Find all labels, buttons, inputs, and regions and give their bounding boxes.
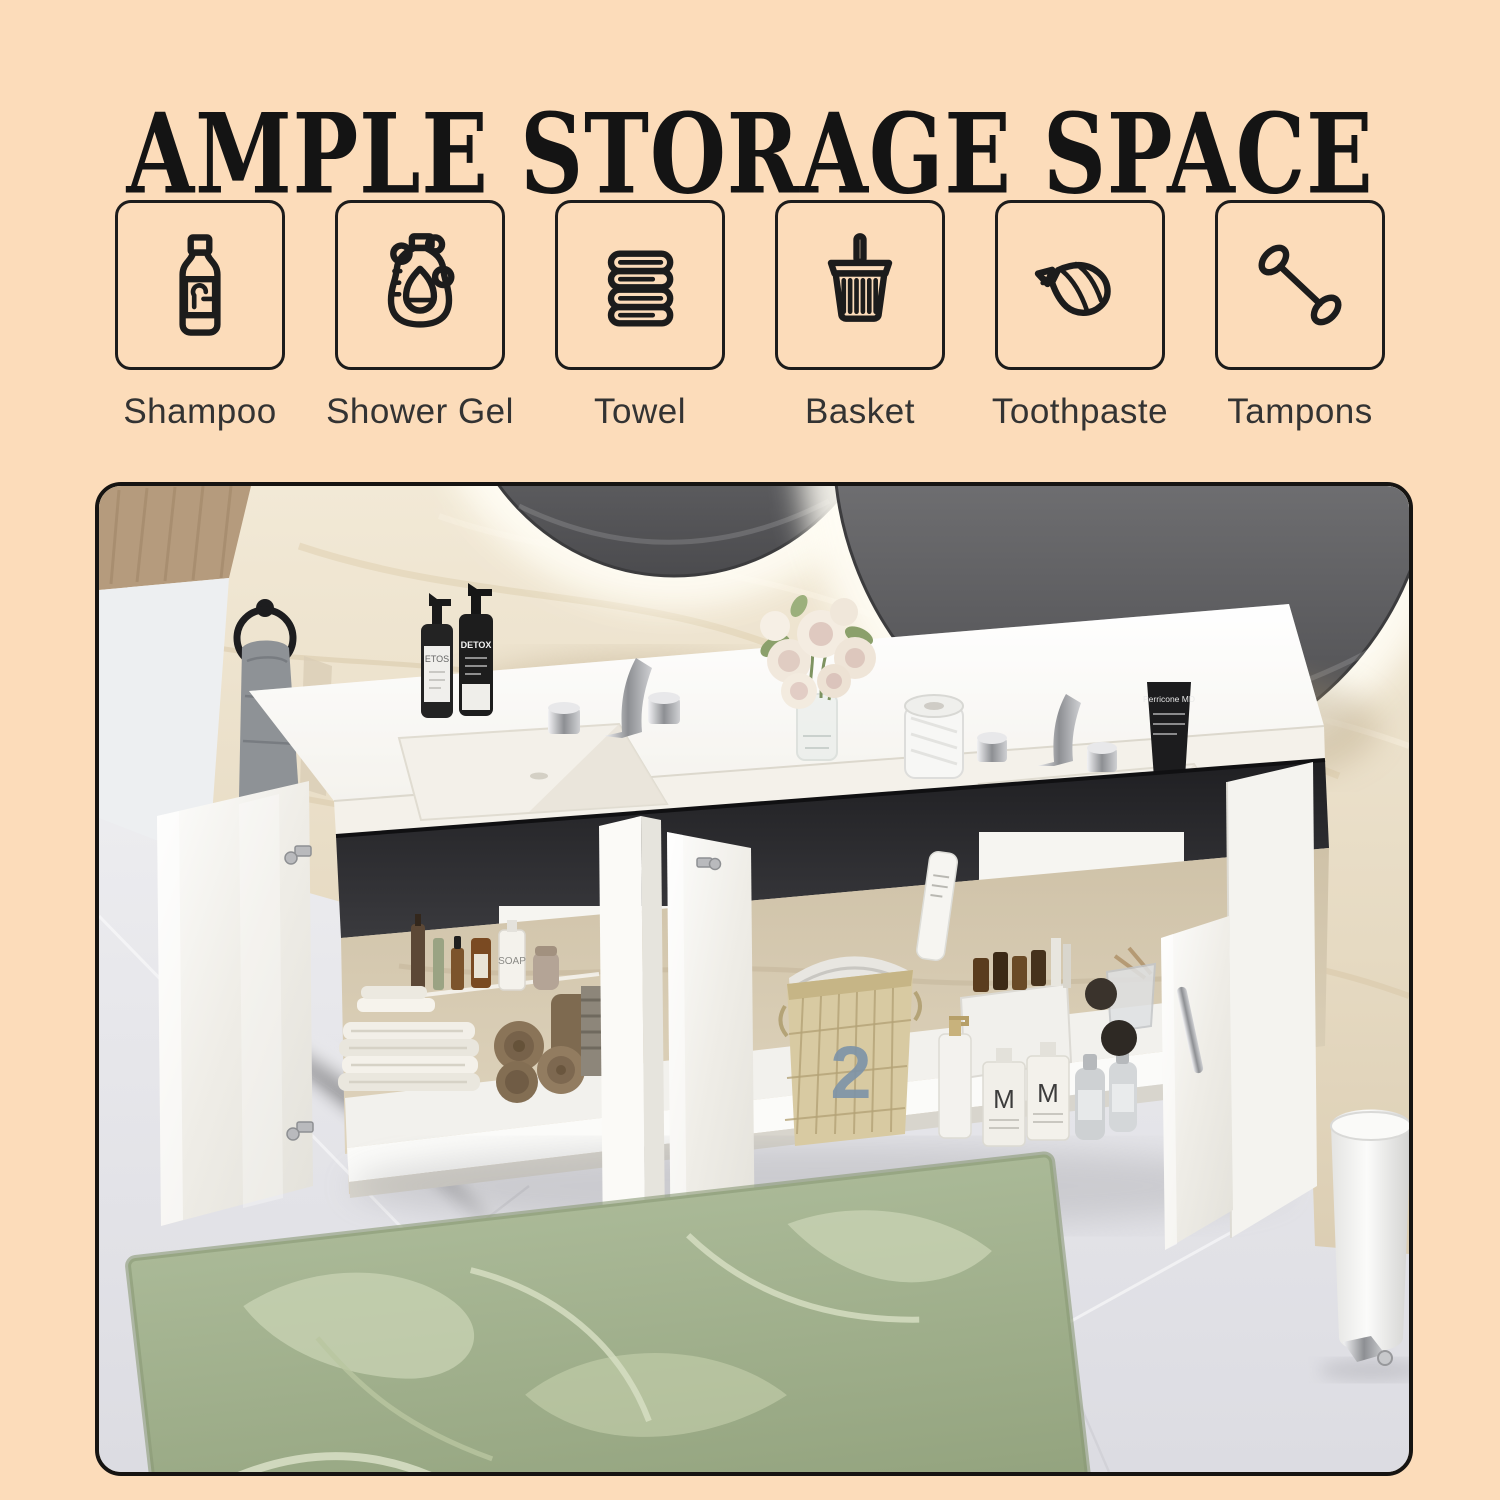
- feature-label: Tampons: [1227, 392, 1373, 432]
- feature-towel: Towel: [555, 200, 725, 432]
- feature-label: Towel: [594, 392, 686, 432]
- door-right: [1161, 916, 1233, 1250]
- feature-box: [1215, 200, 1385, 370]
- feature-basket: Basket: [775, 200, 945, 432]
- folded-towels-icon: [582, 227, 698, 343]
- feature-tampons: Tampons: [1215, 200, 1385, 432]
- toothpaste-brand-label: Perricone MD: [1143, 694, 1195, 704]
- feature-box: [555, 200, 725, 370]
- cotton-swab-icon: [1242, 227, 1358, 343]
- toothpaste-tube-icon: [1022, 227, 1138, 343]
- feature-box: [995, 200, 1165, 370]
- soap-bottle-label: SOAP: [498, 956, 526, 967]
- feature-row: Shampoo Shower Gel: [0, 200, 1500, 432]
- shampoo-bottle-label: ETOS: [425, 654, 449, 664]
- door-left: [157, 781, 313, 1226]
- page-title: AMPLE STORAGE SPACE: [120, 96, 1380, 212]
- feature-label: Basket: [805, 392, 915, 432]
- feature-label: Shampoo: [123, 392, 276, 432]
- cabinet-side-panel: [1227, 762, 1317, 1238]
- marketing-page: { "page": { "background": "#fcdcba", "ac…: [0, 0, 1500, 1500]
- feature-shampoo: Shampoo: [115, 200, 285, 432]
- feature-box: [775, 200, 945, 370]
- detox-bottle-label: DETOX: [461, 640, 492, 650]
- product-photo: ETOS DETOX: [95, 482, 1413, 1476]
- storage-basket: 2: [780, 956, 920, 1146]
- shower-gel-bottle-icon: [362, 227, 478, 343]
- m-bottle-label-left: M: [993, 1084, 1015, 1114]
- feature-label: Toothpaste: [992, 392, 1168, 432]
- feature-label: Shower Gel: [326, 392, 514, 432]
- feature-shower-gel: Shower Gel: [335, 200, 505, 432]
- m-bottle-label-right: M: [1037, 1078, 1059, 1108]
- basket-number: 2: [830, 1031, 871, 1114]
- feature-box: [335, 200, 505, 370]
- sink-left: [399, 724, 667, 820]
- wood-panel: [99, 486, 251, 590]
- shopping-basket-icon: [802, 227, 918, 343]
- paper-towel-roll: [905, 695, 963, 778]
- shampoo-bottle-icon: [142, 227, 258, 343]
- feature-toothpaste: Toothpaste: [995, 200, 1165, 432]
- bathroom-scene: ETOS DETOX: [99, 486, 1409, 1472]
- feature-box: [115, 200, 285, 370]
